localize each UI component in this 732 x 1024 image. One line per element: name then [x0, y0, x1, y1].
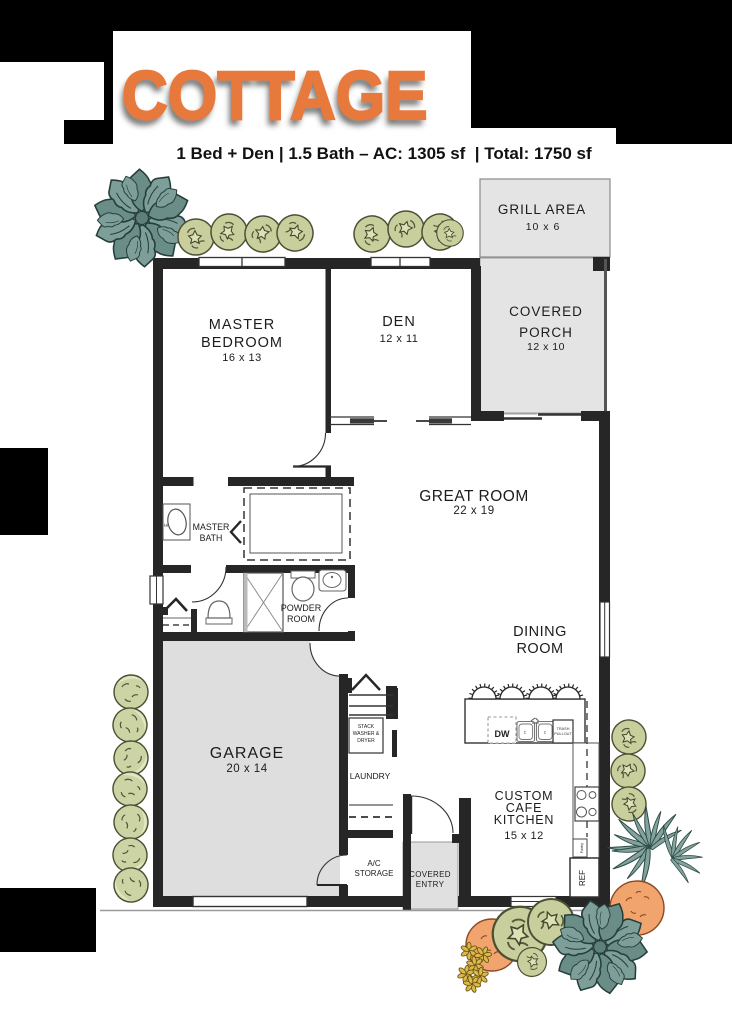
svg-text:MASTER: MASTER — [193, 522, 230, 532]
svg-text:PORCH: PORCH — [519, 325, 573, 340]
svg-text:DW: DW — [495, 729, 510, 739]
svg-text:STACK: STACK — [358, 724, 375, 730]
svg-text:BATH: BATH — [200, 533, 223, 543]
svg-text:BEDROOM: BEDROOM — [201, 335, 283, 351]
svg-text:LAUNDRY: LAUNDRY — [350, 771, 391, 781]
svg-text:12 x 11: 12 x 11 — [380, 333, 419, 345]
svg-text:STORAGE: STORAGE — [355, 869, 394, 878]
svg-text:WASHER &: WASHER & — [353, 731, 380, 737]
svg-text:COVERED: COVERED — [509, 304, 583, 319]
svg-text:10 x 6: 10 x 6 — [526, 221, 561, 233]
svg-text:DEN: DEN — [382, 314, 416, 330]
svg-text:15 x 12: 15 x 12 — [504, 830, 544, 842]
svg-text:TRASH: TRASH — [557, 727, 570, 731]
svg-text:ROOM: ROOM — [516, 641, 563, 657]
svg-text:POWDER: POWDER — [281, 603, 322, 613]
svg-text:16 x 13: 16 x 13 — [222, 352, 262, 364]
svg-text:COVERED: COVERED — [409, 870, 451, 879]
svg-text:DINING: DINING — [513, 624, 567, 640]
svg-text:GARAGE: GARAGE — [210, 745, 284, 762]
svg-text:12 x 10: 12 x 10 — [527, 341, 565, 353]
svg-text:KITCHEN: KITCHEN — [494, 813, 554, 827]
svg-text:MASTER: MASTER — [209, 317, 275, 333]
svg-text:ROOM: ROOM — [287, 614, 315, 624]
svg-text:A/C: A/C — [367, 859, 381, 868]
svg-text:DRYER: DRYER — [357, 738, 375, 744]
svg-text:22 x 19: 22 x 19 — [453, 505, 494, 517]
svg-text:20 x 14: 20 x 14 — [226, 763, 267, 775]
svg-text:REF: REF — [578, 870, 587, 886]
svg-text:ENTRY: ENTRY — [416, 880, 445, 889]
svg-text:GREAT ROOM: GREAT ROOM — [419, 488, 529, 505]
svg-text:GRILL AREA: GRILL AREA — [498, 202, 586, 217]
svg-text:Pantry: Pantry — [580, 843, 584, 853]
svg-text:PULLOUT: PULLOUT — [554, 732, 572, 736]
